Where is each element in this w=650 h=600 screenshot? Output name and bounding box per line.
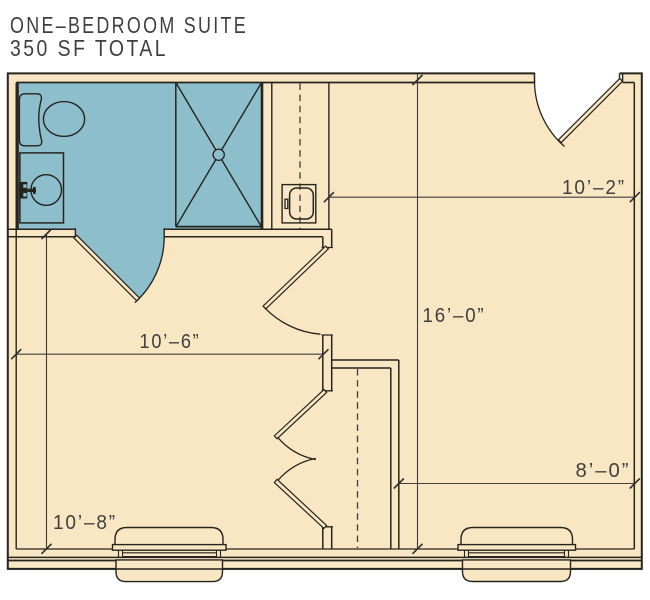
svg-text:10’–2”: 10’–2” — [562, 176, 626, 199]
svg-text:350 SF TOTAL: 350 SF TOTAL — [10, 35, 168, 61]
svg-text:16’–0”: 16’–0” — [423, 304, 486, 327]
svg-text:10’–6”: 10’–6” — [140, 330, 201, 353]
svg-text:10’–8”: 10’–8” — [53, 511, 117, 534]
svg-text:8’–0”: 8’–0” — [576, 459, 631, 482]
